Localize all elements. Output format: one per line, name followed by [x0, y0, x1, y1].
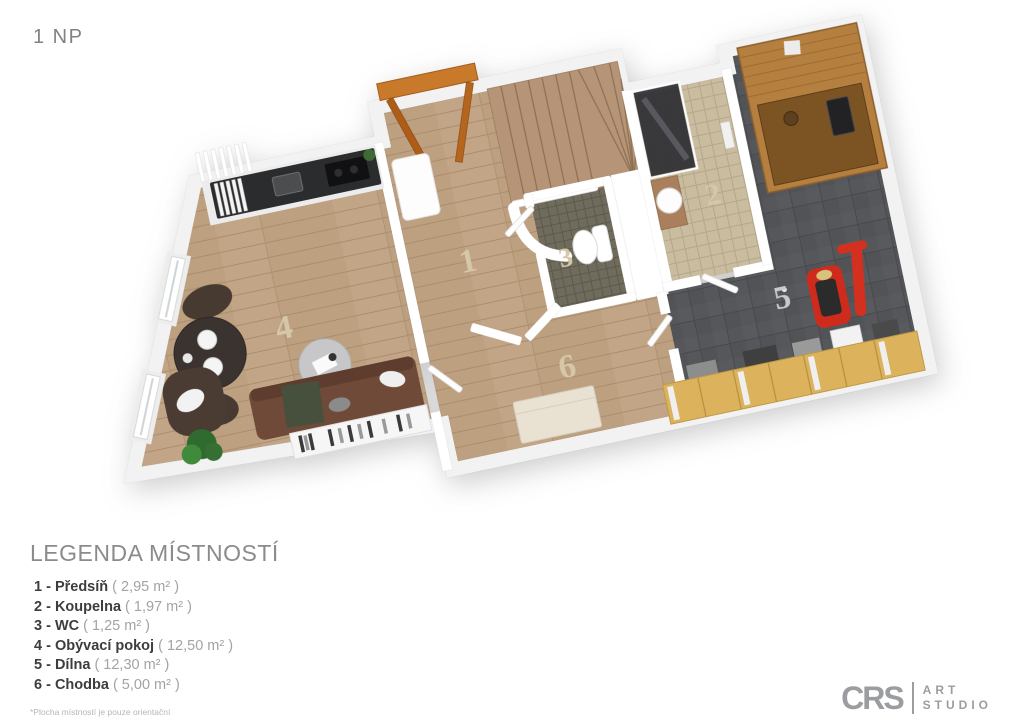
legend-item-area: ( 12,30 m² ) — [94, 657, 169, 673]
legend-item-label: 6 - Chodba — [34, 677, 109, 693]
legend-item-area: ( 1,97 m² ) — [125, 599, 192, 615]
legend-item-1: 1 - Předsíň ( 2,95 m² ) — [30, 578, 450, 598]
legend-item-area: ( 2,95 m² ) — [112, 579, 179, 595]
legend-item-3: 3 - WC ( 1,25 m² ) — [30, 617, 450, 637]
logo-line-studio: STUDIO — [923, 698, 992, 713]
logo-brand: CRS — [841, 682, 903, 714]
floor-plan: 1 2 3 4 5 6 — [0, 0, 1024, 560]
legend-item-label: 1 - Předsíň — [34, 579, 108, 595]
legend-item-label: 5 - Dílna — [34, 657, 90, 673]
legend-item-5: 5 - Dílna ( 12,30 m² ) — [30, 656, 450, 676]
logo-line-art: ART — [923, 683, 992, 698]
legend-item-label: 4 - Obývací pokoj — [34, 638, 154, 654]
legend-item-6: 6 - Chodba ( 5,00 m² ) — [30, 676, 450, 696]
legend: LEGENDA MÍSTNOSTÍ 1 - Předsíň ( 2,95 m² … — [30, 540, 450, 717]
legend-item-area: ( 1,25 m² ) — [83, 618, 150, 634]
legend-item-label: 2 - Koupelna — [34, 599, 121, 615]
studio-logo: CRS ART STUDIO — [841, 682, 992, 714]
legend-footnote: *Plocha místností je pouze orientační — [30, 707, 450, 717]
legend-title: LEGENDA MÍSTNOSTÍ — [30, 540, 450, 567]
legend-item-area: ( 5,00 m² ) — [113, 677, 180, 693]
legend-item-4: 4 - Obývací pokoj ( 12,50 m² ) — [30, 637, 450, 657]
legend-item-label: 3 - WC — [34, 618, 79, 634]
logo-divider — [912, 682, 914, 714]
legend-item-2: 2 - Koupelna ( 1,97 m² ) — [30, 598, 450, 618]
legend-item-area: ( 12,50 m² ) — [158, 638, 233, 654]
